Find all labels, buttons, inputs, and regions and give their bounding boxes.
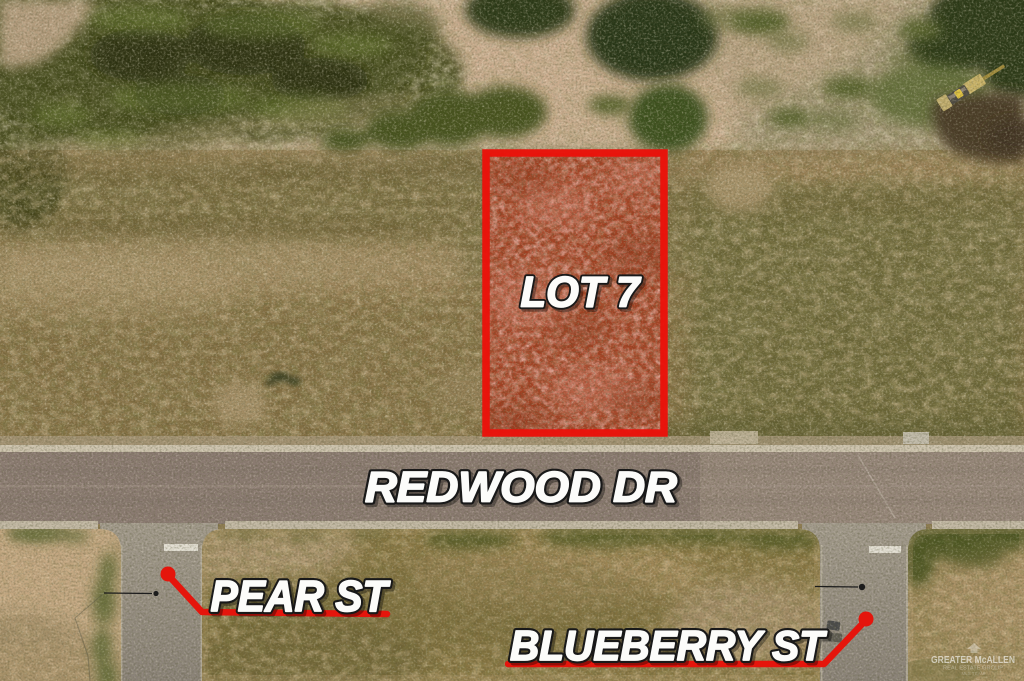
svg-text:LOT 7: LOT 7 — [521, 269, 642, 317]
svg-text:GREATER McALLEN: GREATER McALLEN — [931, 655, 1015, 666]
svg-text:REDWOOD DR: REDWOOD DR — [365, 465, 677, 512]
svg-text:MLS TEAM: MLS TEAM — [962, 671, 985, 676]
svg-text:PEAR ST: PEAR ST — [211, 572, 391, 621]
svg-text:BLUEBERRY ST: BLUEBERRY ST — [510, 622, 828, 669]
